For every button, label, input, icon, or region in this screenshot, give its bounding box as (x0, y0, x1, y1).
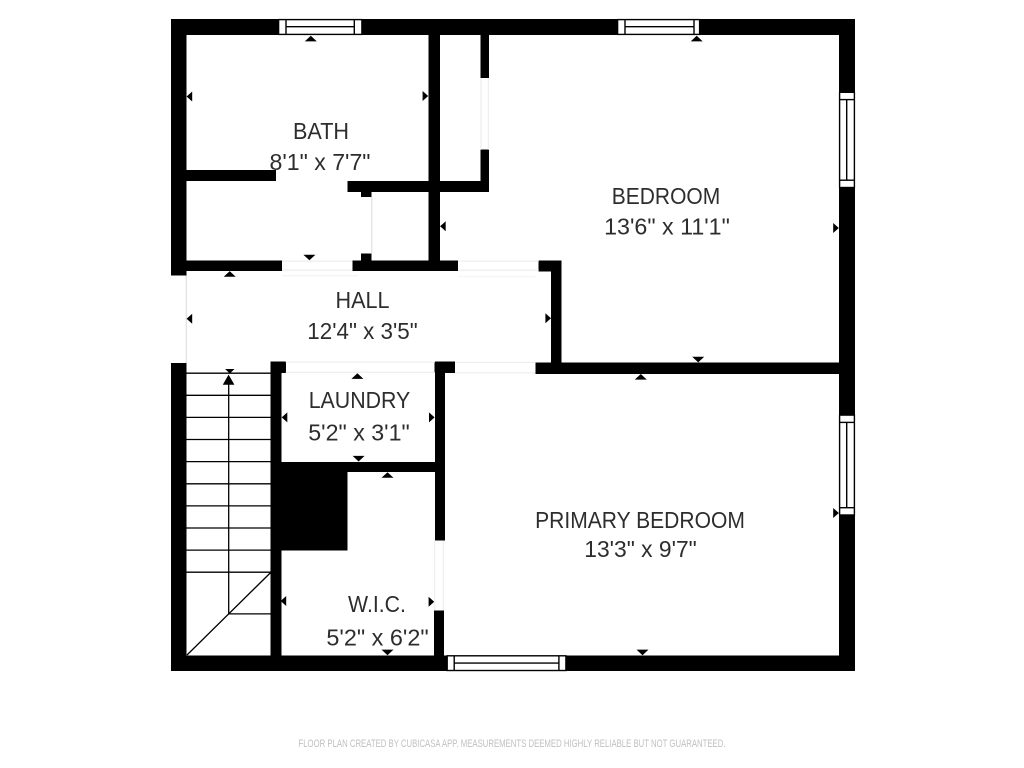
svg-text:PRIMARY BEDROOM: PRIMARY BEDROOM (535, 507, 745, 533)
svg-text:13'6" x 11'1": 13'6" x 11'1" (604, 213, 730, 239)
svg-text:BEDROOM: BEDROOM (612, 183, 721, 209)
svg-text:8'1" x 7'7": 8'1" x 7'7" (270, 149, 371, 175)
svg-text:LAUNDRY: LAUNDRY (309, 387, 411, 413)
svg-text:5'2" x 3'1": 5'2" x 3'1" (308, 420, 410, 446)
svg-text:12'4" x 3'5": 12'4" x 3'5" (307, 318, 417, 344)
svg-text:5'2" x 6'2": 5'2" x 6'2" (326, 625, 428, 651)
svg-text:FLOOR PLAN CREATED BY CUBICASA: FLOOR PLAN CREATED BY CUBICASA APP. MEAS… (299, 738, 726, 750)
svg-text:W.I.C.: W.I.C. (348, 591, 406, 617)
svg-text:BATH: BATH (293, 118, 349, 144)
svg-text:13'3" x 9'7": 13'3" x 9'7" (584, 536, 697, 562)
svg-text:HALL: HALL (336, 287, 390, 313)
